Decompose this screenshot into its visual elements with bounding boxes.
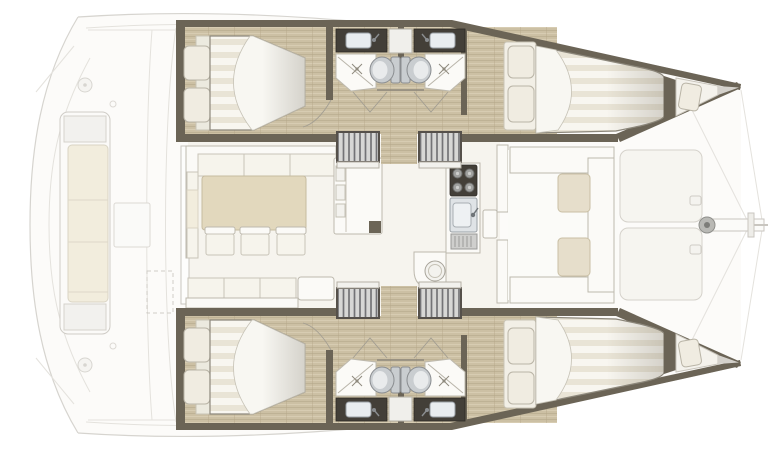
hull-inboard-wall-fwd [461,134,618,142]
dining-table [202,176,306,230]
sideboard-shelf [336,204,345,217]
bow-cleat [690,196,701,205]
chair-back [205,227,235,234]
coffee-table [298,277,334,300]
forepeak-pillow [678,82,702,111]
cabin-head-divider [326,27,333,100]
sofa-seat-top [198,154,336,176]
bench-end-cap [64,116,106,142]
cockpit-table [114,203,150,247]
bowsprit-end-fitting [748,213,754,237]
vanity-basin [430,33,455,48]
cockpit-bench-forward [588,158,614,292]
anchor-roller-center [704,222,710,228]
sideboard-shelf [336,185,345,200]
deck-fitting-dot [83,83,87,87]
stove [450,165,477,196]
shower-drain [442,67,445,70]
bench-end-cap [64,304,106,330]
settee-seat [188,278,296,298]
stair-treads [419,132,461,162]
deck-fitting-dot [83,363,87,367]
chair-seat [277,234,305,255]
transom-bench [60,112,110,334]
shower-drain [355,67,358,70]
catamaran-floorplan [0,0,768,450]
settee-back [186,298,298,308]
sideboard-corner [369,221,381,233]
forepeak-bulkhead [664,76,676,118]
galley-sink-basin [453,203,471,227]
stair-treads [337,132,379,162]
toilet-seat [373,61,388,79]
lounge-cushion [558,174,590,212]
sideboard-unit [334,158,382,234]
stair-bottom-step [337,162,379,168]
toilet-seat [414,61,429,79]
sunpad [620,228,702,300]
salon-forward-wall [497,145,508,212]
salon-forward-wall [497,240,508,303]
vanity-basin [346,33,371,48]
chair-back [276,227,306,234]
pillow [184,46,210,80]
companionway-stairs [337,131,461,168]
chair-back [240,227,270,234]
hull-aft-wall [176,20,185,142]
sofa-cushion-left [187,190,198,228]
bench-cushion [68,145,108,302]
chair-seat [241,234,269,255]
lounge-cushion [558,238,590,276]
forward-cockpit [508,147,618,303]
stair-bottom-step [419,162,461,168]
sunpad [620,150,702,222]
stair-landing [381,131,417,164]
pillow [508,86,534,122]
head-center-panel [389,29,412,53]
pillow [508,46,534,78]
hull-inboard-wall-aft [176,134,337,142]
floorplan-canvas [0,0,768,450]
dining-chairs [205,227,306,255]
bow-cleat [690,245,701,254]
forward-door-leaf [483,210,497,238]
chair-seat [206,234,234,255]
pillow [184,88,210,122]
